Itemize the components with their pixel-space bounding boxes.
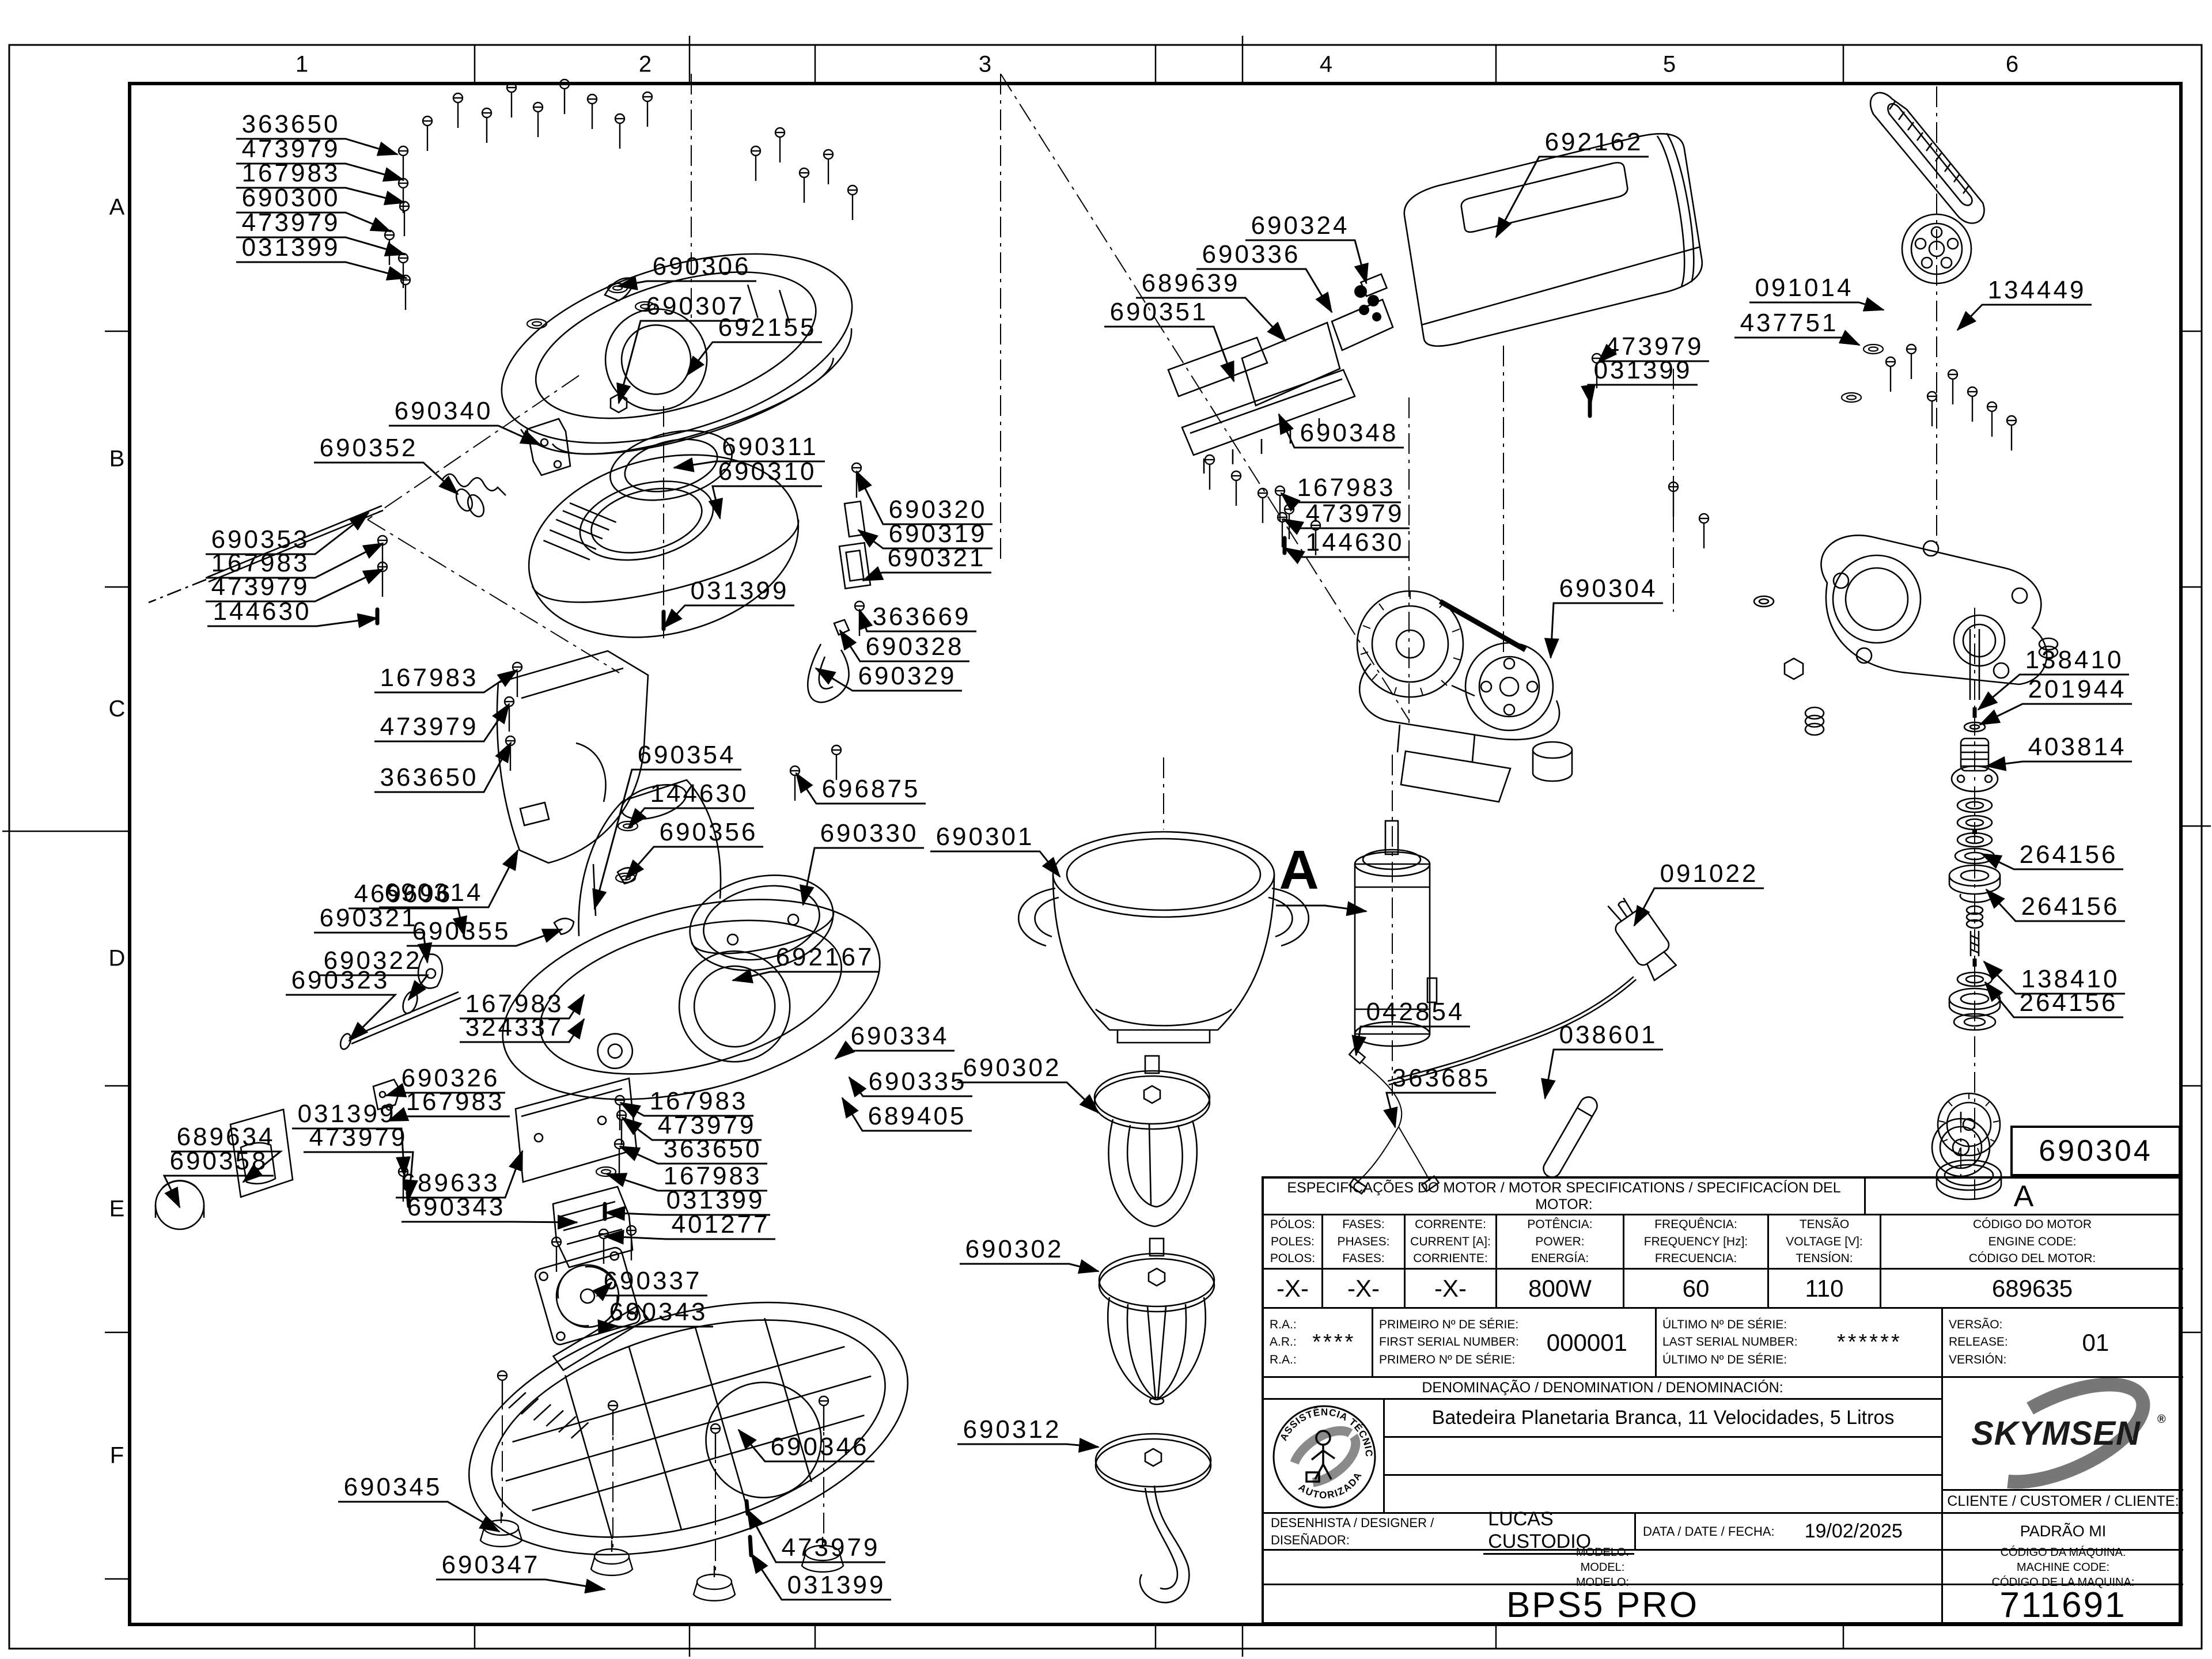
part-label: 144630 [650, 781, 749, 807]
part-label: 473979 [211, 574, 310, 600]
spec-value-cell: 60 [1624, 1270, 1769, 1309]
last-serial-cell: ÚLTIMO Nº DE SÉRIE:LAST SERIAL NUMBER:ÚL… [1657, 1309, 1943, 1378]
denomination-blank-2 [1385, 1476, 1943, 1514]
part-label: 690324 [1251, 213, 1350, 239]
denomination-header: DENOMINAÇÃO / DENOMINATION / DENOMINACIÓ… [1264, 1378, 1943, 1400]
part-label: 692162 [1545, 129, 1643, 156]
machine-code-value: 711691 [1943, 1585, 2183, 1625]
part-label: 363650 [664, 1136, 762, 1162]
zone-column-label: 6 [2006, 52, 2018, 78]
part-label: 031399 [242, 234, 340, 261]
part-label: 144630 [1306, 529, 1404, 556]
part-label: 690302 [963, 1055, 1062, 1081]
part-label: 689639 [1142, 270, 1240, 297]
part-label: 264156 [2020, 842, 2118, 868]
machine-code-label-cell: CÓDIGO DA MÁQUINA:MACHINE CODE:CÓDIGO DE… [1943, 1551, 2183, 1585]
part-label: 690335 [869, 1069, 967, 1095]
part-label: 031399 [1594, 357, 1692, 384]
detail-part-box: 690304 [2010, 1126, 2181, 1176]
model-value: BPS5 PRO [1264, 1585, 1943, 1625]
spec-header: ESPECIFICAÇÕES DO MOTOR / MOTOR SPECIFIC… [1264, 1179, 1866, 1215]
part-label: 690354 [638, 742, 736, 768]
part-label: 690300 [242, 185, 340, 211]
part-label: 473979 [242, 210, 340, 236]
part-label: 091022 [1660, 861, 1759, 887]
part-label: 690323 [291, 967, 390, 994]
part-label: 690351 [1110, 299, 1209, 325]
part-label: 473979 [380, 714, 479, 740]
part-label: 167983 [242, 160, 340, 187]
part-label: 690330 [820, 820, 919, 847]
part-label: 696875 [822, 776, 921, 802]
brand-logo-cell: SKYMSEN ® [1943, 1378, 2183, 1491]
part-label: 031399 [691, 578, 789, 604]
spec-label-cell: CÓDIGO DO MOTORENGINE CODE:CÓDIGO DEL MO… [1881, 1215, 2183, 1270]
part-label: 264156 [2020, 990, 2118, 1016]
zone-column-label: 4 [1320, 52, 1332, 78]
zone-column-label: 1 [296, 52, 308, 78]
revision-cell: A [1866, 1179, 2181, 1215]
ra-cell: R.A.:A.R.:R.A.: **** [1264, 1309, 1373, 1378]
part-label: 692167 [776, 944, 874, 971]
svg-text:®: ® [2157, 1413, 2166, 1426]
spec-label-cell: PÓLOS:POLES:POLOS: [1264, 1215, 1323, 1270]
zone-row-label: A [109, 195, 125, 221]
part-label: 689405 [868, 1103, 967, 1130]
part-label: 690340 [395, 398, 493, 425]
part-label: 690358 [170, 1148, 268, 1175]
title-block: ESPECIFICAÇÕES DO MOTOR / MOTOR SPECIFIC… [1262, 1176, 2181, 1624]
part-label: 473979 [1306, 501, 1404, 527]
part-label: 038601 [1559, 1022, 1658, 1048]
part-label: 473979 [782, 1535, 880, 1561]
spec-label-cell: POTÊNCIA:POWER:ENERGÍA: [1497, 1215, 1624, 1270]
authorized-service-stamp: ASSISTÊNCIA TÉCNICA AUTORIZADA [1264, 1400, 1385, 1514]
zone-column-label: 5 [1663, 52, 1676, 78]
part-label: 363669 [873, 604, 971, 630]
part-label: 403814 [2028, 734, 2127, 760]
part-label: 690334 [851, 1023, 949, 1050]
part-label: 473979 [309, 1124, 408, 1151]
part-label: 690328 [866, 634, 964, 660]
part-label: 167983 [1297, 475, 1396, 501]
part-label: 690352 [320, 435, 418, 461]
spec-label-cell: FASES:PHASES:FASES: [1323, 1215, 1406, 1270]
part-label: 167983 [406, 1089, 505, 1115]
spec-label-cell: TENSÃOVOLTAGE [V]:TENSÍON: [1769, 1215, 1881, 1270]
brand-logo-text: SKYMSEN [1971, 1415, 2141, 1452]
part-label: 690348 [1300, 420, 1399, 446]
part-label: 690346 [771, 1434, 869, 1460]
part-label: 201944 [2028, 676, 2127, 703]
part-label: 363650 [380, 764, 479, 791]
part-label: 690304 [1559, 575, 1658, 602]
part-label: 401277 [672, 1211, 770, 1238]
part-label: 690329 [858, 663, 957, 690]
part-label: 690355 [412, 918, 511, 945]
part-label: 363650 [242, 111, 340, 138]
part-label: 031399 [787, 1572, 886, 1599]
date-cell: DATA / DATE / FECHA: 19/02/2025 [1636, 1514, 1943, 1551]
zone-column-label: 3 [979, 52, 991, 78]
spec-value-cell: -X- [1264, 1270, 1323, 1309]
denomination-blank-1 [1385, 1438, 1943, 1476]
part-label: 134449 [1988, 277, 2086, 304]
part-label: 167983 [380, 665, 479, 691]
first-serial-cell: PRIMEIRO Nº DE SÉRIE:FIRST SERIAL NUMBER… [1373, 1309, 1657, 1378]
part-label: 690312 [963, 1416, 1062, 1443]
part-label: 042854 [1366, 999, 1465, 1025]
detail-marker-a: A [1279, 839, 1319, 902]
part-label: 144630 [213, 599, 312, 625]
part-label: 690321 [320, 905, 418, 931]
date-value: 19/02/2025 [1805, 1520, 1903, 1543]
version-cell: VERSÃO:RELEASE:VERSIÓN: 01 [1943, 1309, 2183, 1378]
zone-row-label: C [109, 696, 126, 722]
part-label: 324337 [465, 1014, 564, 1041]
part-label: 264156 [2021, 893, 2120, 920]
zone-row-label: E [109, 1196, 125, 1222]
part-label: 690345 [344, 1474, 442, 1501]
zone-row-label: D [109, 946, 126, 972]
spec-value-cell: 689635 [1881, 1270, 2183, 1309]
part-label: 091014 [1755, 275, 1854, 301]
model-label-cell: MODELO:MODEL:MODELO: [1264, 1551, 1943, 1585]
spec-value-cell: 110 [1769, 1270, 1881, 1309]
part-label: 690343 [407, 1194, 506, 1221]
zone-row-label: B [109, 446, 125, 472]
drawing-sheet: 3636504739791679836903004739790313996903… [0, 0, 2212, 1659]
spec-value-cell: -X- [1406, 1270, 1497, 1309]
part-label: 690337 [604, 1268, 702, 1294]
spec-value-cell: 800W [1497, 1270, 1624, 1309]
part-label: 690343 [609, 1299, 708, 1325]
part-label: 690347 [442, 1552, 540, 1578]
client-label: CLIENTE / CUSTOMER / CLIENTE: [1943, 1491, 2183, 1514]
spec-value-cell: -X- [1323, 1270, 1406, 1309]
part-label: 138410 [2025, 647, 2124, 673]
part-label: 690336 [1202, 241, 1301, 268]
part-label: 690310 [718, 459, 817, 485]
part-label: 692155 [718, 315, 817, 341]
part-label: 363685 [1392, 1065, 1491, 1092]
part-label: 690311 [722, 434, 819, 460]
part-label: 437751 [1740, 310, 1839, 336]
part-label: 690302 [965, 1236, 1064, 1263]
part-label: 690356 [660, 819, 758, 846]
zone-row-label: F [110, 1443, 124, 1469]
part-label: 690321 [888, 545, 986, 571]
zone-column-label: 2 [639, 52, 652, 78]
spec-label-cell: FREQUÊNCIA:FREQUENCY [Hz]:FRECUENCIA: [1624, 1215, 1769, 1270]
part-label: 690301 [936, 824, 1035, 850]
denomination-value: Batedeira Planetaria Branca, 11 Velocida… [1385, 1400, 1943, 1438]
spec-label-cell: CORRENTE:CURRENT [A]:CORRIENTE: [1406, 1215, 1497, 1270]
part-label: 690306 [653, 253, 751, 280]
